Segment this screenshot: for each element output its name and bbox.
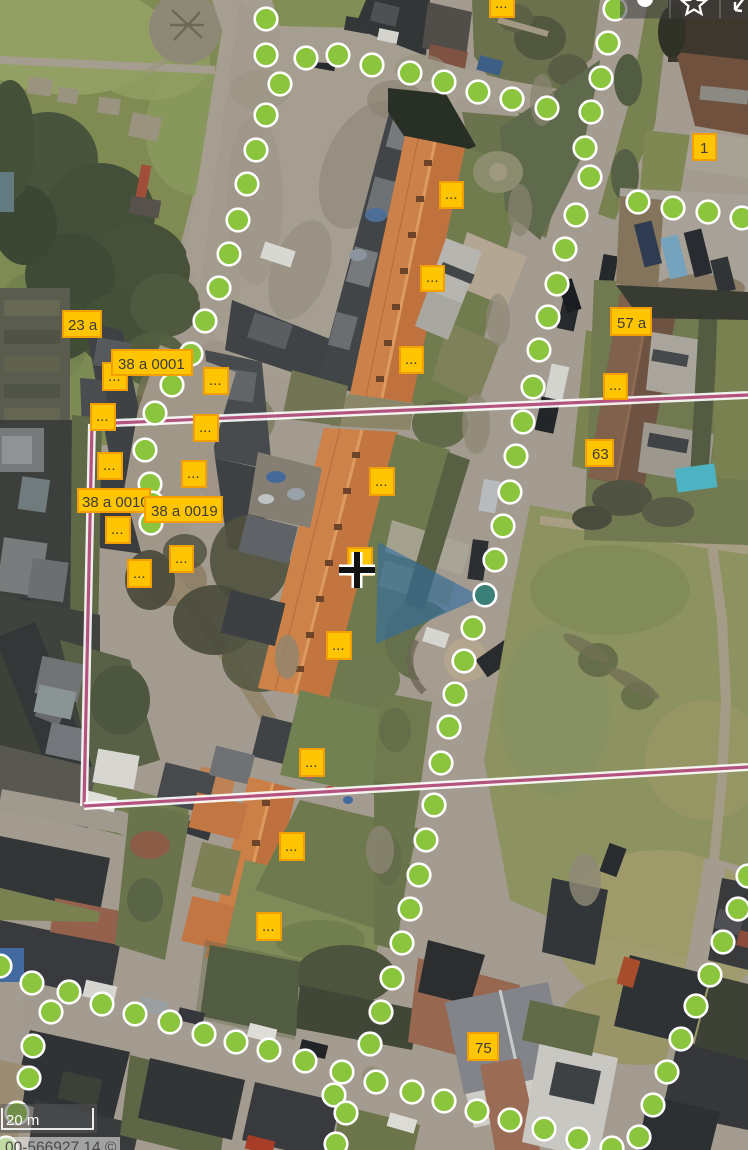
svg-text:...: ...: [262, 918, 275, 935]
svg-text:...: ...: [199, 419, 212, 436]
svg-text:...: ...: [609, 377, 622, 394]
svg-text:...: ...: [495, 0, 508, 12]
svg-text:...: ...: [285, 838, 298, 855]
svg-text:38 a 0001: 38 a 0001: [118, 356, 185, 373]
svg-text:63: 63: [592, 446, 609, 463]
svg-text:...: ...: [209, 372, 222, 389]
svg-text:...: ...: [445, 186, 458, 203]
svg-text:...: ...: [305, 754, 318, 771]
svg-text:...: ...: [426, 269, 439, 286]
svg-text:...: ...: [103, 457, 116, 474]
svg-text:...: ...: [175, 550, 188, 567]
svg-text:23 a: 23 a: [68, 317, 98, 334]
svg-text:...: ...: [133, 565, 146, 582]
svg-text:...: ...: [375, 473, 388, 490]
svg-text:38 a 0010: 38 a 0010: [82, 494, 149, 511]
svg-text:...: ...: [111, 521, 124, 538]
svg-text:38 a 0019: 38 a 0019: [151, 503, 218, 520]
svg-text:20 m: 20 m: [6, 1112, 39, 1129]
svg-text:75: 75: [475, 1040, 492, 1057]
svg-text:00-566927.14 ©: 00-566927.14 ©: [5, 1140, 117, 1150]
svg-text:...: ...: [187, 465, 200, 482]
svg-text:1: 1: [700, 140, 708, 157]
svg-text:...: ...: [96, 408, 109, 425]
svg-text:57 a: 57 a: [617, 315, 647, 332]
svg-text:...: ...: [332, 637, 345, 654]
svg-text:...: ...: [405, 351, 418, 368]
